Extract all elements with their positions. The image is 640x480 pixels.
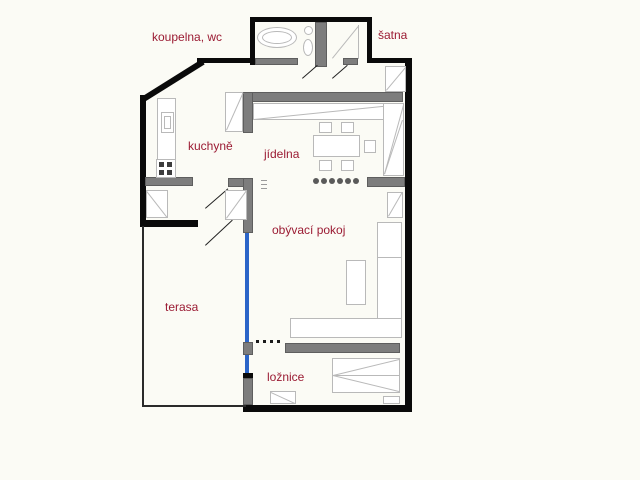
room-label-dining: jídelna xyxy=(264,148,299,161)
dining-chair xyxy=(341,122,354,133)
floor-plan: koupelna, wc šatna kuchyně jídelna obýva… xyxy=(0,0,640,480)
divider-dot xyxy=(321,178,327,184)
wall-bath-dressing-divider xyxy=(315,22,327,67)
wall-block-right xyxy=(367,17,372,63)
dining-chair xyxy=(319,122,332,133)
wall-terrace-pier-upper xyxy=(243,342,253,355)
stove-burner xyxy=(159,170,164,175)
door-swing-dressing xyxy=(332,65,348,79)
dining-chair xyxy=(319,160,332,171)
stove-burner xyxy=(159,162,164,167)
bathtub-inner xyxy=(262,31,292,44)
divider-dot xyxy=(329,178,335,184)
glass-window-bedroom xyxy=(245,355,249,373)
dining-table xyxy=(313,135,360,157)
opening-dot xyxy=(277,340,280,343)
room-label-terrace: terasa xyxy=(165,301,198,314)
room-label-bedroom: ložnice xyxy=(267,371,304,384)
sofa-divider xyxy=(377,257,402,258)
opening-dot xyxy=(270,340,273,343)
door-swing-terrace xyxy=(205,220,233,246)
wall-diagonal xyxy=(140,59,204,102)
divider-dot xyxy=(313,178,319,184)
terrace-wall-left xyxy=(142,226,144,407)
wall-terrace-pier-lower xyxy=(243,378,253,405)
divider-dot xyxy=(353,178,359,184)
wall-dining-southeast xyxy=(367,177,405,187)
bed-midline xyxy=(333,375,399,376)
wall-dining-top xyxy=(243,92,403,102)
opening-dot xyxy=(263,340,266,343)
radiator-icon xyxy=(261,184,267,185)
wardrobe-diagonal xyxy=(332,25,359,58)
stove-burner xyxy=(167,170,172,175)
dining-chair xyxy=(364,140,376,153)
coffee-table xyxy=(346,260,366,305)
divider-dot xyxy=(337,178,343,184)
dining-chair xyxy=(341,160,354,171)
wall-bedroom-north xyxy=(285,343,400,353)
wall-bedroom-window-post xyxy=(243,373,253,378)
wall-top-left-segment xyxy=(197,58,255,63)
room-label-living: obývací pokoj xyxy=(272,224,345,237)
wardrobe-edge xyxy=(358,25,359,59)
wall-bottom xyxy=(243,405,412,412)
wall-right xyxy=(405,58,412,412)
wall-kitchen-bottom xyxy=(140,220,198,227)
room-label-dressing: šatna xyxy=(378,29,407,42)
radiator-icon xyxy=(261,188,267,189)
glass-wall-living-terrace xyxy=(245,233,249,342)
sink-basin xyxy=(304,26,313,35)
sofa-horizontal xyxy=(290,318,402,338)
wall-dressing-bottom xyxy=(343,58,358,65)
wall-kitchen-dining-pier xyxy=(243,92,253,133)
toilet xyxy=(303,39,313,56)
stove-burner xyxy=(167,162,172,167)
door-swing-bathroom xyxy=(302,65,318,79)
radiator-icon xyxy=(261,180,267,181)
room-label-kitchen: kuchyně xyxy=(188,140,233,153)
nightstand xyxy=(383,396,400,404)
kitchen-sink-basin xyxy=(164,116,171,129)
wall-bath-bottom xyxy=(255,58,298,65)
opening-dot xyxy=(256,340,259,343)
terrace-wall-bottom xyxy=(142,405,246,407)
wall-kitchen-south xyxy=(145,177,193,186)
wall-block-top xyxy=(250,17,372,22)
divider-dot xyxy=(345,178,351,184)
room-label-bathroom: koupelna, wc xyxy=(152,31,222,44)
